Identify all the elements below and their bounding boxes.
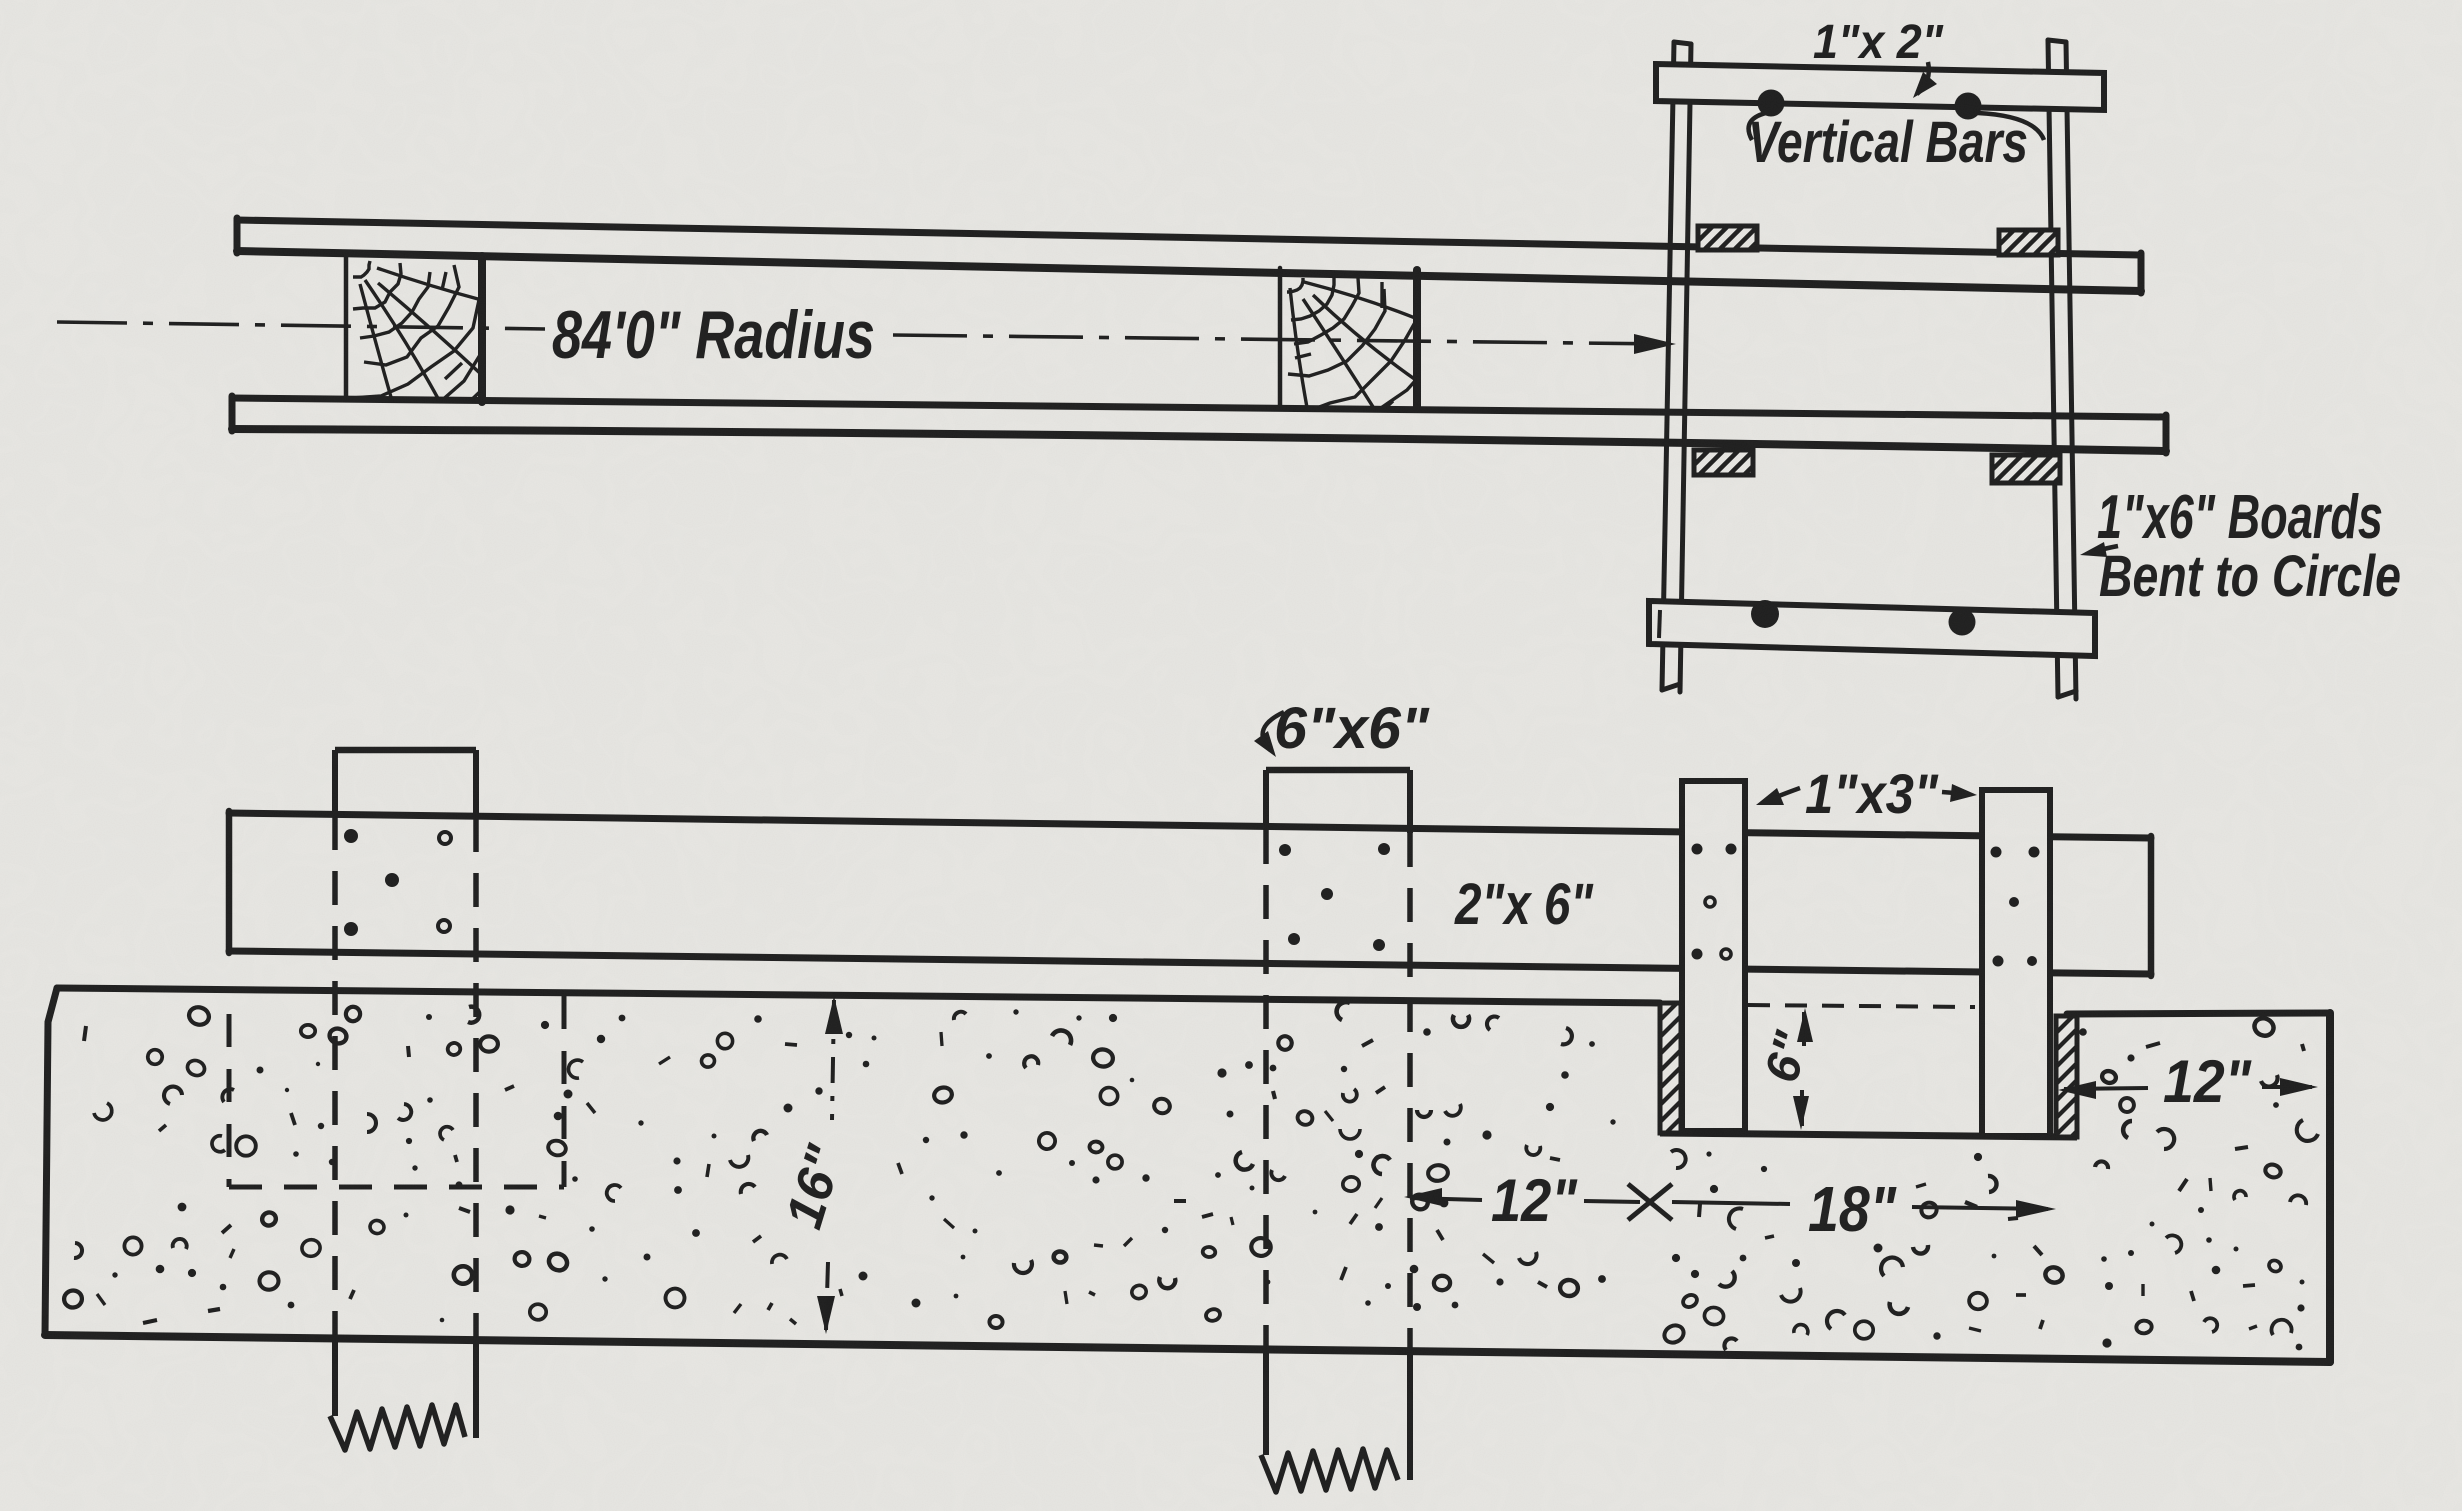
svg-text:12": 12" (2163, 1048, 2252, 1115)
svg-text:6"x6": 6"x6" (1274, 696, 1431, 761)
svg-text:18": 18" (1808, 1173, 1897, 1245)
svg-text:Vertical Bars: Vertical Bars (1748, 110, 2028, 175)
svg-text:1"x6" Boards: 1"x6" Boards (2097, 483, 2383, 552)
svg-text:84'0" Radius: 84'0" Radius (552, 297, 875, 373)
svg-text:Bent to Circle: Bent to Circle (2099, 544, 2401, 609)
svg-text:1"x 2": 1"x 2" (1813, 16, 1944, 69)
svg-text:2"x 6": 2"x 6" (1454, 872, 1594, 937)
svg-text:1"x3": 1"x3" (1805, 762, 1939, 825)
svg-text:12": 12" (1491, 1167, 1578, 1234)
